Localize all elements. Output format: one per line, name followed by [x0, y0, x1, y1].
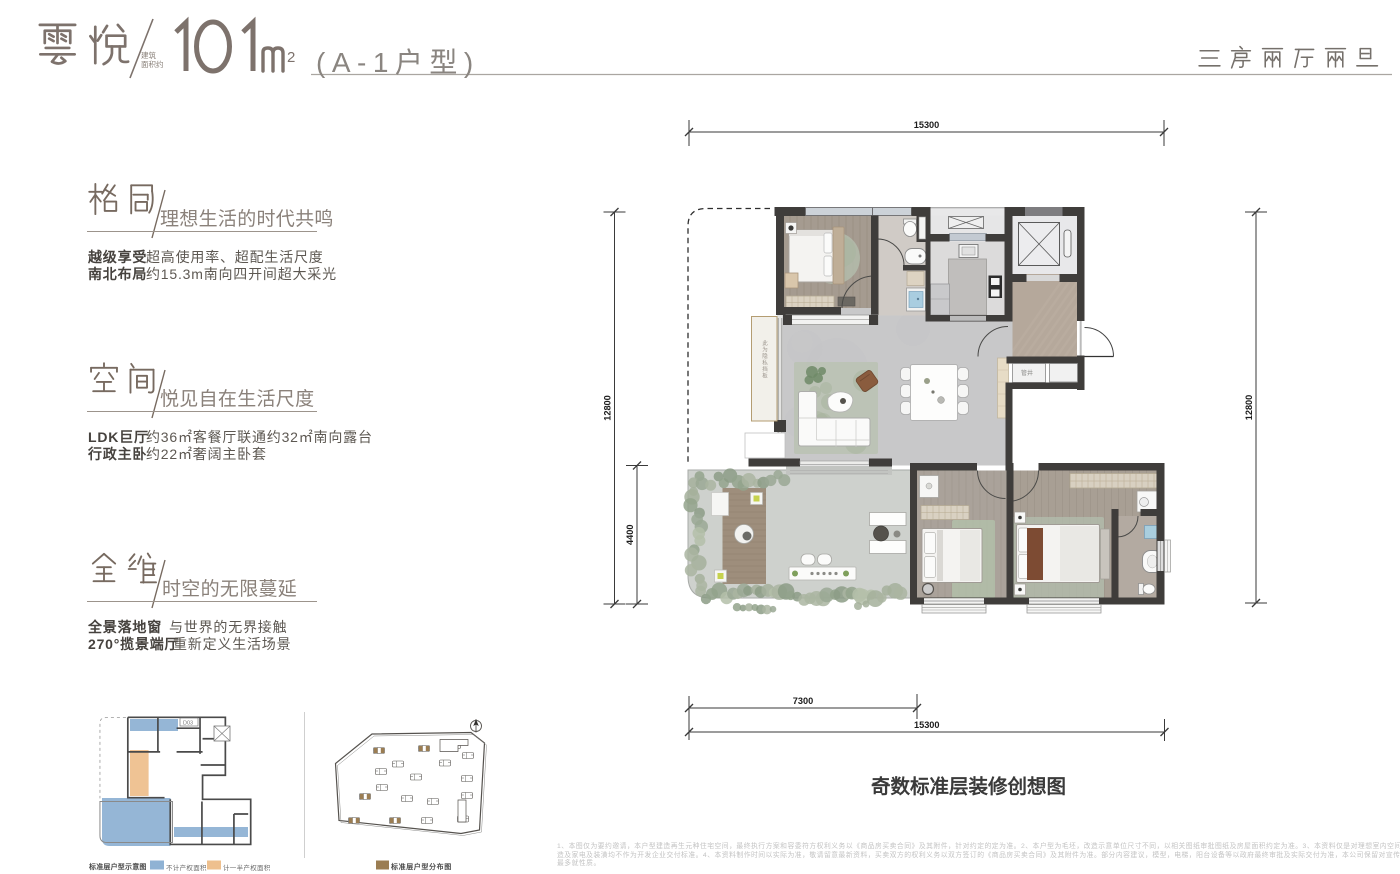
- svg-text:管井: 管井: [1021, 369, 1033, 377]
- svg-text:4400: 4400: [625, 525, 635, 545]
- svg-text:D03: D03: [183, 721, 193, 727]
- svg-text:此为隐私挡板: 此为隐私挡板: [761, 339, 768, 380]
- svg-text:7300: 7300: [793, 696, 813, 706]
- svg-text:15300: 15300: [914, 720, 940, 730]
- svg-text:12800: 12800: [603, 395, 613, 421]
- svg-text:2: 2: [287, 49, 295, 66]
- svg-text:15300: 15300: [914, 120, 940, 130]
- svg-text:12800: 12800: [1244, 395, 1254, 421]
